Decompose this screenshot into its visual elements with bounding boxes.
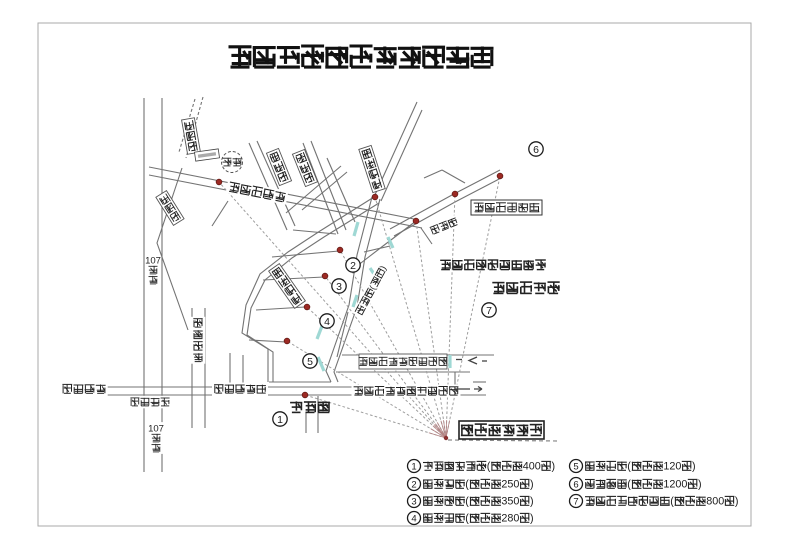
svg-text:(: ( — [627, 479, 631, 491]
svg-text:1: 1 — [411, 461, 416, 472]
svg-text:): ) — [530, 496, 534, 508]
svg-text:280: 280 — [501, 513, 519, 525]
svg-text:2: 2 — [411, 479, 416, 490]
svg-text:107: 107 — [145, 255, 161, 266]
svg-text:7: 7 — [573, 496, 578, 507]
svg-text:6: 6 — [533, 144, 539, 156]
svg-text:3: 3 — [411, 496, 416, 507]
svg-text:4: 4 — [411, 513, 416, 524]
svg-text:350: 350 — [501, 496, 519, 508]
svg-text:3: 3 — [336, 281, 342, 293]
svg-text:6: 6 — [573, 479, 578, 490]
svg-text:): ) — [698, 479, 702, 491]
svg-text:): ) — [692, 461, 696, 473]
svg-text:(: ( — [465, 513, 469, 525]
svg-text:7: 7 — [486, 305, 492, 317]
svg-text:107: 107 — [148, 423, 164, 434]
svg-text:(: ( — [670, 496, 674, 508]
svg-text:5: 5 — [573, 461, 578, 472]
svg-text:): ) — [552, 461, 556, 473]
svg-text:120: 120 — [663, 461, 681, 473]
svg-text:(: ( — [465, 479, 469, 491]
svg-text:): ) — [530, 513, 534, 525]
svg-text:400: 400 — [523, 461, 541, 473]
svg-text:250: 250 — [501, 479, 519, 491]
svg-text:1: 1 — [277, 414, 283, 426]
svg-text:2: 2 — [350, 260, 356, 272]
svg-text:5: 5 — [307, 356, 313, 368]
svg-text:): ) — [735, 496, 739, 508]
svg-text:800: 800 — [706, 496, 724, 508]
svg-text:): ) — [530, 479, 534, 491]
svg-text:1200: 1200 — [663, 479, 687, 491]
svg-text:(: ( — [465, 496, 469, 508]
svg-text:4: 4 — [324, 316, 330, 328]
svg-text:(: ( — [627, 461, 631, 473]
svg-text:(: ( — [487, 461, 491, 473]
